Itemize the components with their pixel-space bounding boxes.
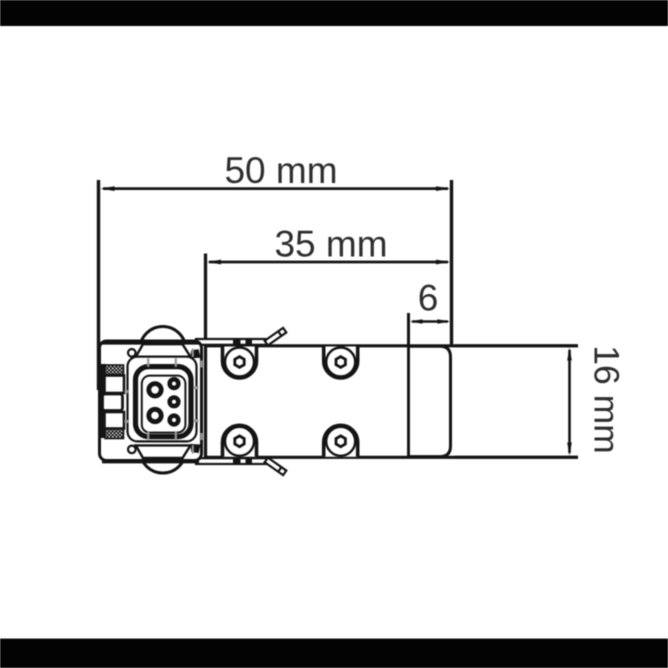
svg-text:6: 6 <box>418 278 439 319</box>
svg-text:16 mm: 16 mm <box>587 345 627 454</box>
svg-text:35 mm: 35 mm <box>274 224 387 265</box>
svg-text:50 mm: 50 mm <box>224 150 337 191</box>
